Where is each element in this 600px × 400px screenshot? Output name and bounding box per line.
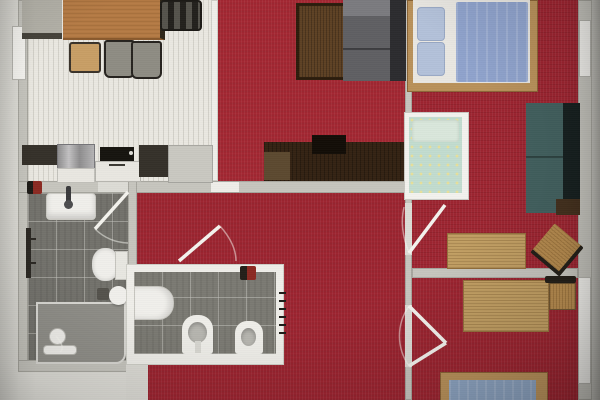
floor-plan — [0, 0, 600, 400]
door-bedroom-2-leaf-a — [409, 306, 446, 343]
door-bedroom-1-leaf — [409, 205, 445, 253]
door-bathroom-large-leaf — [95, 192, 128, 229]
door-bathroom-large-arc — [95, 229, 128, 243]
door-bathroom-small-arc — [220, 226, 236, 261]
door-bedroom-2-arc — [399, 306, 409, 366]
shower-hose — [56, 336, 62, 352]
door-bathroom-small-leaf — [179, 226, 220, 261]
door-bedroom-2-leaf-b — [409, 343, 446, 366]
door-bedroom-1-arc — [402, 207, 409, 253]
door-swings — [0, 0, 600, 400]
